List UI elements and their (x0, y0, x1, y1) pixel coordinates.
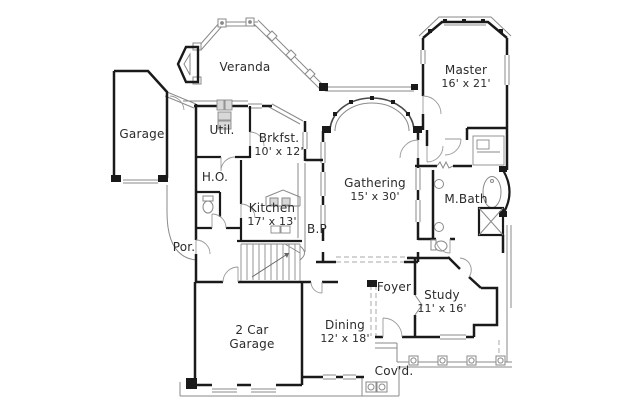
floor-plan-canvas: Veranda Master 16' x 21' Garage Util. Br… (0, 0, 620, 415)
wall-master (415, 22, 507, 170)
interior-walls (196, 106, 510, 241)
garage-door-icon (212, 389, 276, 392)
wall-dining (302, 282, 364, 385)
fireplace-study-icon (479, 208, 503, 235)
column-icon (366, 356, 505, 392)
post-diamond (267, 31, 315, 79)
dashed-lines (336, 257, 499, 360)
bathtub-icon (483, 177, 501, 208)
porch-curve (167, 185, 196, 260)
veranda-posts (193, 18, 315, 84)
stairs-icon (241, 244, 300, 281)
wall-gathering-right (404, 131, 418, 262)
wall-study (407, 257, 497, 337)
kitchen-island (271, 226, 290, 233)
wall-upper-garage (114, 71, 167, 178)
arch-window-icon (330, 98, 414, 131)
wall-gathering-left (316, 131, 336, 262)
garage-door-icon (123, 180, 158, 183)
sink-icon (435, 180, 444, 232)
french-door-icon (415, 295, 422, 315)
veranda-railing (183, 20, 414, 101)
washer-dryer-icon (217, 100, 232, 129)
closet-shelves (473, 136, 504, 165)
wall-2car-garage (195, 282, 302, 385)
range-hood-icon (266, 190, 300, 206)
floor-plan-drawing (0, 0, 620, 415)
